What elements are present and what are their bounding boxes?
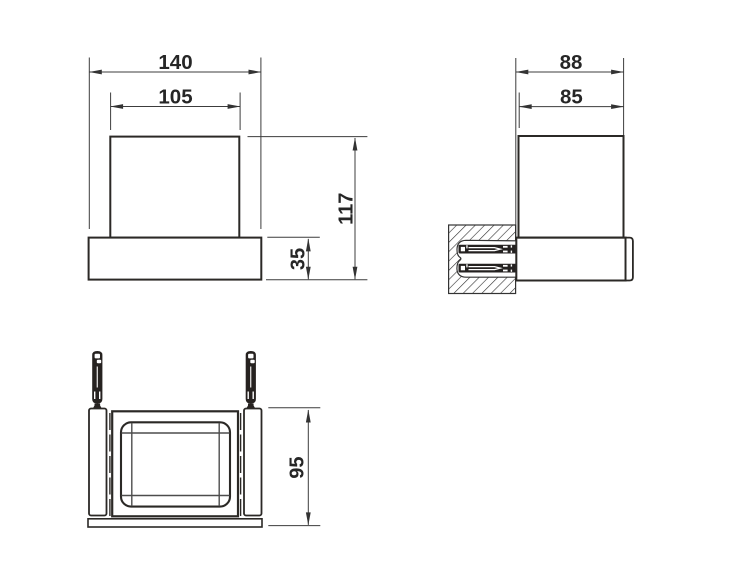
svg-text:140: 140 (158, 51, 192, 74)
svg-text:35: 35 (287, 248, 309, 270)
svg-text:88: 88 (560, 51, 583, 74)
svg-text:105: 105 (158, 86, 192, 109)
svg-text:85: 85 (560, 86, 583, 109)
svg-text:95: 95 (286, 456, 308, 478)
svg-text:117: 117 (336, 193, 358, 225)
